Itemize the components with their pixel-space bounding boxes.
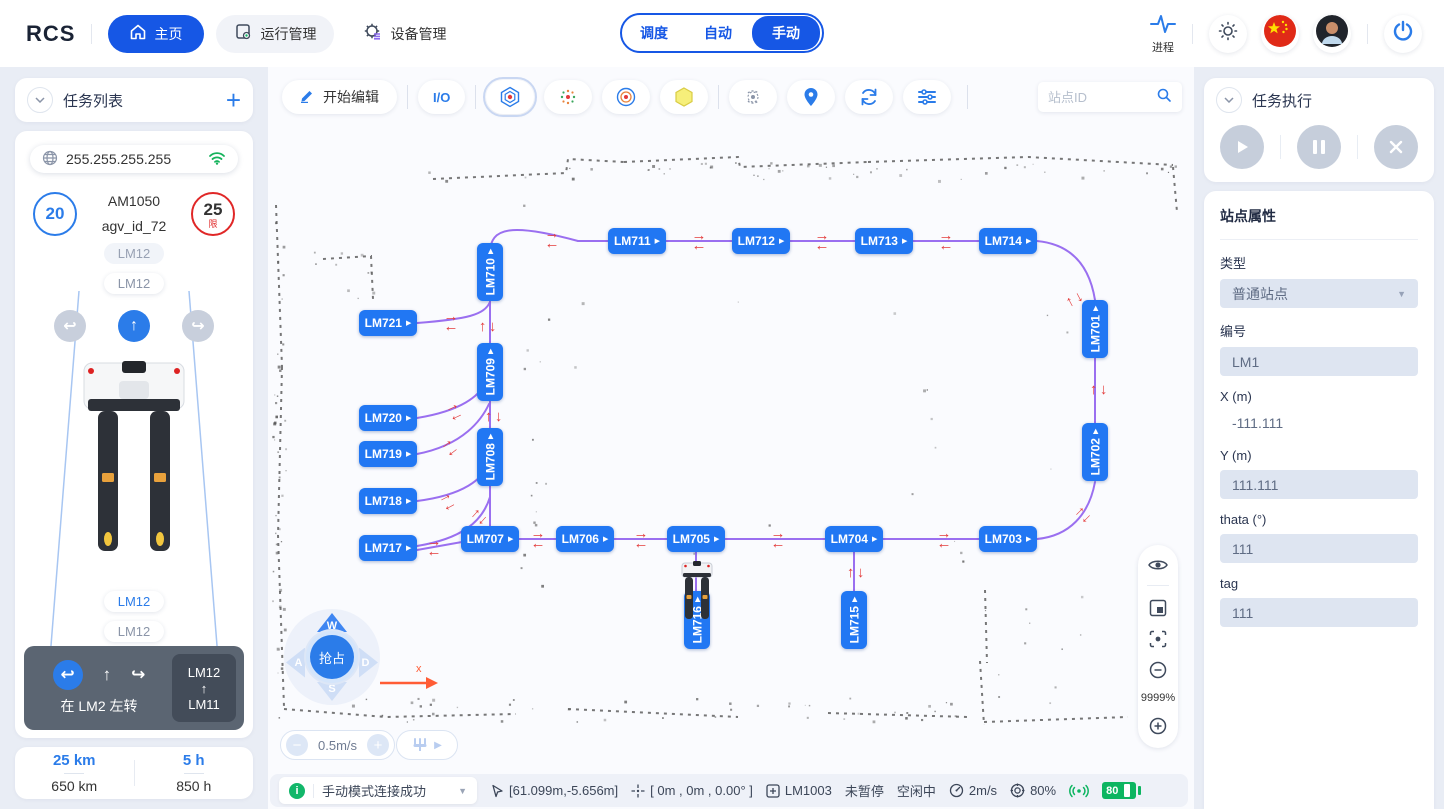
divider xyxy=(1367,24,1368,44)
nav-operations[interactable]: 运行管理 xyxy=(216,15,334,53)
turn-right-button[interactable]: ↪ xyxy=(182,310,214,342)
field-label-4: thata (°) xyxy=(1220,512,1418,527)
map-station-lm703[interactable]: LM703▶ xyxy=(979,526,1037,552)
speed-increase-button[interactable]: + xyxy=(367,734,389,756)
vehicle-ip-field[interactable]: 255.255.255.255 xyxy=(30,145,238,173)
monitor-gear-icon xyxy=(234,23,252,44)
power-icon xyxy=(1392,20,1414,47)
route-direction-arrows: →← xyxy=(436,489,459,514)
refresh-button[interactable] xyxy=(845,80,893,114)
left-sidebar: 任务列表 + 255.255.255.255 20 AM1050 agv_id_… xyxy=(0,67,268,809)
right-sidebar: 任务执行 站点属性 类型普通站点▼编号LM1X (m)-111.111Y (m)… xyxy=(1194,67,1444,809)
field-label-2: X (m) xyxy=(1220,389,1418,404)
layer-rings-button[interactable] xyxy=(602,80,650,114)
station-properties-title: 站点属性 xyxy=(1220,206,1418,240)
search-icon[interactable] xyxy=(1156,87,1172,108)
hours-total: 850 h xyxy=(135,778,254,794)
map-station-lm702[interactable]: LM702▶ xyxy=(1082,423,1108,481)
confidence-indicator: 80% xyxy=(1010,783,1056,798)
task-cancel-button[interactable] xyxy=(1374,125,1418,169)
field-label-3: Y (m) xyxy=(1220,448,1418,463)
route-direction-arrows: →← xyxy=(545,229,560,249)
top-bar: RCS 主页 运行管理 设备管理 调度 自动 手动 进程 xyxy=(0,0,1444,67)
route-direction-arrows: →← xyxy=(937,529,952,549)
map-station-lm714[interactable]: LM714▶ xyxy=(979,228,1037,254)
pencil-icon xyxy=(300,88,315,106)
station-search xyxy=(1038,82,1182,112)
route-direction-arrows: →← xyxy=(482,410,502,425)
home-icon xyxy=(130,24,146,43)
map-toolbar: 开始编辑 I/O xyxy=(282,80,1182,114)
process-button[interactable]: 进程 xyxy=(1150,13,1176,55)
turn-left-button[interactable]: ↩ xyxy=(54,310,86,342)
run-state: 空闲中 xyxy=(897,781,936,800)
joystick-forward[interactable]: W xyxy=(317,613,347,632)
station-properties-panel: 站点属性 类型普通站点▼编号LM1X (m)-111.111Y (m)111.1… xyxy=(1204,191,1434,809)
field-value-4[interactable]: 111 xyxy=(1220,534,1418,563)
vehicle-card: 255.255.255.255 20 AM1050 agv_id_72 25 限… xyxy=(15,131,253,738)
nav-devices[interactable]: 设备管理 xyxy=(346,15,464,53)
route-direction-arrows: →← xyxy=(437,435,461,460)
route-direction-arrows: →← xyxy=(1087,383,1107,398)
route-direction-arrows: →← xyxy=(815,231,830,251)
map-station-lm718[interactable]: LM718▶ xyxy=(359,488,417,514)
field-label-5: tag xyxy=(1220,576,1418,591)
speed-limit-badge: 25 限 xyxy=(191,192,235,236)
filter-settings-button[interactable] xyxy=(903,80,951,114)
map-station-lm717[interactable]: LM717▶ xyxy=(359,535,417,561)
relocate-button[interactable] xyxy=(729,80,777,114)
task-pause-button[interactable] xyxy=(1297,125,1341,169)
gear-icon xyxy=(364,23,382,44)
visibility-button[interactable] xyxy=(1148,558,1168,572)
nav-devices-label: 设备管理 xyxy=(390,24,446,44)
zoom-out-button[interactable] xyxy=(1149,661,1167,679)
station-search-input[interactable] xyxy=(1048,90,1156,105)
start-edit-label: 开始编辑 xyxy=(323,87,379,107)
station-chip: LM12 xyxy=(104,621,165,642)
chevron-down-icon: ▼ xyxy=(458,786,467,796)
turn-left-icon: ↩ xyxy=(53,660,83,690)
route-direction-arrows: →← xyxy=(443,399,465,423)
field-value-2: -111.111 xyxy=(1220,411,1418,435)
language-flag-button[interactable] xyxy=(1261,15,1299,53)
process-label: 进程 xyxy=(1152,39,1174,55)
china-flag-icon xyxy=(1263,15,1297,53)
status-message: 手动模式连接成功 xyxy=(322,781,450,800)
route-direction-arrows: →← xyxy=(427,537,442,557)
forward-button[interactable]: ↑ xyxy=(118,310,150,342)
info-icon: i xyxy=(289,783,305,799)
vehicle-agv-id: agv_id_72 xyxy=(102,214,167,239)
nav-home-label: 主页 xyxy=(154,24,182,44)
mode-manual[interactable]: 手动 xyxy=(752,16,820,50)
battery-indicator: 80 xyxy=(1102,782,1136,799)
speed-badge: 20 xyxy=(33,192,77,236)
station-chip: LM12 xyxy=(104,591,165,612)
zoom-in-button[interactable] xyxy=(1149,717,1167,735)
manual-joystick: W A S D 抢占 xyxy=(284,609,380,705)
add-task-button[interactable]: + xyxy=(226,87,241,113)
km-current: 25 km xyxy=(15,752,134,769)
collapse-task-exec-button[interactable] xyxy=(1216,87,1242,113)
pulse-icon xyxy=(1150,13,1176,38)
field-value-0[interactable]: 普通站点▼ xyxy=(1220,279,1418,308)
manual-speed-value: 0.5m/s xyxy=(318,738,357,753)
map-station-lm715[interactable]: LM715▶ xyxy=(841,591,867,649)
map-station-lm707[interactable]: LM707▶ xyxy=(461,526,519,552)
route-box: LM12 ↑ LM11 xyxy=(172,654,236,722)
hours-current: 5 h xyxy=(135,752,254,769)
straight-icon: ↑ xyxy=(103,665,112,685)
map-station-lm708[interactable]: LM708▶ xyxy=(477,428,503,486)
pause-state: 未暂停 xyxy=(845,781,884,800)
mode-dispatch[interactable]: 调度 xyxy=(622,23,686,43)
route-direction-arrows: →← xyxy=(771,529,786,549)
map-station-lm709[interactable]: LM709▶ xyxy=(477,343,503,401)
map-view-controls: 9999% xyxy=(1138,545,1178,748)
sun-icon xyxy=(1218,21,1238,46)
route-direction-arrows: →← xyxy=(844,566,864,581)
field-value-3[interactable]: 111.111 xyxy=(1220,470,1418,499)
map-station-lm719[interactable]: LM719▶ xyxy=(359,441,417,467)
task-list-title: 任务列表 xyxy=(63,90,123,111)
task-exec-title: 任务执行 xyxy=(1252,90,1312,111)
map-station-lm721[interactable]: LM721▶ xyxy=(359,310,417,336)
avatar-icon xyxy=(1315,15,1349,53)
map-station-lm713[interactable]: LM713▶ xyxy=(855,228,913,254)
map-station-lm704[interactable]: LM704▶ xyxy=(825,526,883,552)
collapse-task-list-button[interactable] xyxy=(27,87,53,113)
divider xyxy=(1192,24,1193,44)
navigation-hint-panel: ↩ ↑ ↪ 在 LM2 左转 LM12 ↑ LM11 xyxy=(24,646,244,730)
nav-home[interactable]: 主页 xyxy=(108,15,204,53)
field-value-1[interactable]: LM1 xyxy=(1220,347,1418,376)
x-axis-marker: x xyxy=(378,662,438,697)
center-focus-button[interactable] xyxy=(1149,630,1167,648)
globe-icon xyxy=(42,150,58,169)
app-logo: RCS xyxy=(26,21,75,47)
layer-area-button[interactable] xyxy=(660,80,708,114)
field-label-0: 类型 xyxy=(1220,253,1418,272)
route-direction-arrows: →← xyxy=(531,529,546,549)
route-direction-arrows: →← xyxy=(444,312,459,332)
seize-control-button[interactable]: 抢占 xyxy=(306,631,358,683)
map-station-lm706[interactable]: LM706▶ xyxy=(556,526,614,552)
vehicle-model: AM1050 xyxy=(102,189,167,214)
km-total: 650 km xyxy=(15,778,134,794)
nav-hint-text: 在 LM2 左转 xyxy=(60,696,137,716)
stations-layer: LM711▶LM712▶LM713▶LM714▶LM710▶LM701▶LM70… xyxy=(268,67,1194,809)
status-bar: i 手动模式连接成功 ▼ [61.099m,-5.656m] [ 0m , 0m… xyxy=(270,774,1188,807)
vehicle-ip: 255.255.255.255 xyxy=(66,151,200,167)
route-direction-arrows: →← xyxy=(634,529,649,549)
route-direction-arrows: →← xyxy=(939,231,954,251)
mode-auto[interactable]: 自动 xyxy=(686,23,750,43)
route-from: LM12 xyxy=(188,665,221,680)
layer-stations-button[interactable] xyxy=(486,80,534,114)
turn-right-icon: ↪ xyxy=(131,665,145,685)
nav-operations-label: 运行管理 xyxy=(260,24,316,44)
divider xyxy=(91,24,92,44)
fork-action-button[interactable]: ▶ xyxy=(396,730,458,760)
cursor-position: [61.099m,-5.656m] xyxy=(490,783,618,798)
start-edit-button[interactable]: 开始编辑 xyxy=(282,80,397,114)
zoom-level: 9999% xyxy=(1141,692,1175,704)
station-chip: LM12 xyxy=(104,273,165,294)
theme-toggle-button[interactable] xyxy=(1209,15,1247,53)
odometer-card: 25 km 650 km 5 h 850 h xyxy=(15,747,253,799)
route-direction-arrows: →← xyxy=(692,231,707,251)
field-value-5[interactable]: 111 xyxy=(1220,598,1418,627)
route-to: LM11 xyxy=(188,697,220,712)
route-direction-arrows: →← xyxy=(476,320,496,335)
joystick-left[interactable]: A xyxy=(286,648,305,678)
signal-indicator xyxy=(1069,784,1089,798)
status-message-select[interactable]: i 手动模式连接成功 ▼ xyxy=(279,777,477,804)
map-station-lm712[interactable]: LM712▶ xyxy=(732,228,790,254)
route-direction-arrows: →← xyxy=(466,504,491,529)
chevron-down-icon: ▼ xyxy=(1397,289,1406,299)
x-axis-label: x xyxy=(416,663,422,675)
locate-pin-button[interactable] xyxy=(787,80,835,114)
forklift-illustration xyxy=(64,342,204,591)
io-button[interactable]: I/O xyxy=(418,80,465,114)
wifi-icon xyxy=(208,151,226,168)
speed-decrease-button[interactable]: − xyxy=(286,734,308,756)
map-station-lm701[interactable]: LM701▶ xyxy=(1082,300,1108,358)
map-station-lm720[interactable]: LM720▶ xyxy=(359,405,417,431)
mode-switcher: 调度 自动 手动 xyxy=(620,13,824,53)
current-station: LM1003 xyxy=(766,783,832,798)
speed-indicator: 2m/s xyxy=(949,783,997,798)
map-robot-marker[interactable] xyxy=(681,561,713,626)
map-station-lm710[interactable]: LM710▶ xyxy=(477,243,503,301)
robot-pose: [ 0m , 0m , 0.00° ] xyxy=(631,783,753,798)
joystick-back[interactable]: S xyxy=(317,682,347,701)
user-avatar[interactable] xyxy=(1313,15,1351,53)
station-chip: LM12 xyxy=(104,243,165,264)
route-arrow-icon: ↑ xyxy=(201,681,208,696)
fork-play-icon: ▶ xyxy=(434,740,442,751)
minimap-button[interactable] xyxy=(1149,599,1167,617)
manual-speed-control: − 0.5m/s + xyxy=(280,730,395,760)
map-station-lm705[interactable]: LM705▶ xyxy=(667,526,725,552)
map-station-lm711[interactable]: LM711▶ xyxy=(608,228,666,254)
joystick-right[interactable]: D xyxy=(359,648,378,678)
layer-pointcloud-button[interactable] xyxy=(544,80,592,114)
task-play-button[interactable] xyxy=(1220,125,1264,169)
field-label-1: 编号 xyxy=(1220,321,1418,340)
power-button[interactable] xyxy=(1384,15,1422,53)
route-direction-arrows: →← xyxy=(1070,502,1095,527)
map-canvas-area[interactable]: LM711▶LM712▶LM713▶LM714▶LM710▶LM701▶LM70… xyxy=(268,67,1194,809)
